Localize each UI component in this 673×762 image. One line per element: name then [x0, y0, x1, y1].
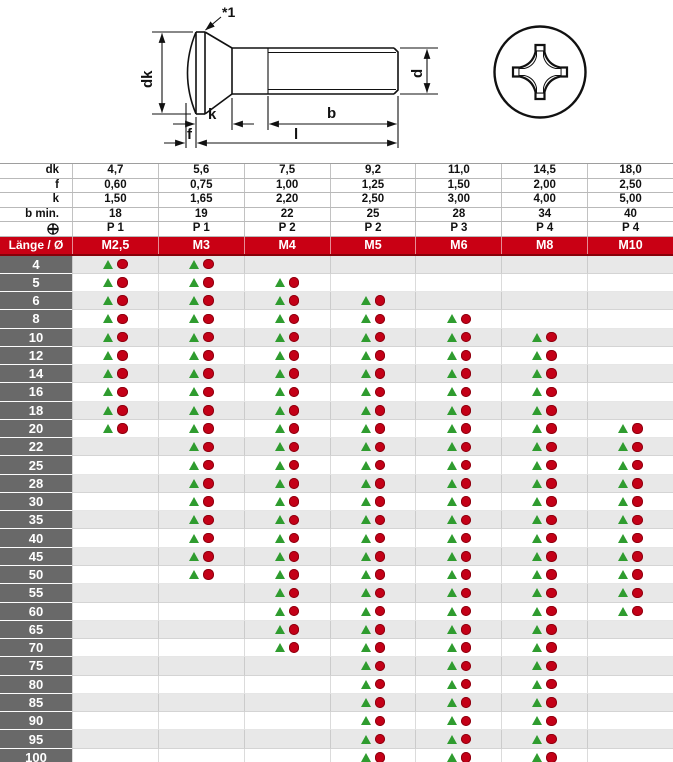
circle-marker [117, 423, 128, 434]
availability-cell [158, 603, 244, 621]
circle-marker [461, 387, 472, 398]
circle-marker [289, 368, 300, 379]
availability-cell [501, 256, 587, 274]
availability-cell [501, 456, 587, 474]
triangle-marker [447, 497, 457, 506]
length-row: 65 [0, 621, 673, 639]
availability-cell [72, 730, 158, 748]
availability-cell [330, 383, 416, 401]
triangle-marker [361, 735, 371, 744]
availability-cell [415, 566, 501, 584]
length-label: 22 [0, 438, 72, 456]
spec-label: b min. [0, 209, 72, 221]
triangle-marker [361, 534, 371, 543]
availability-cell [72, 329, 158, 347]
circle-marker [546, 442, 557, 453]
availability-cell [587, 603, 673, 621]
circle-marker [375, 642, 386, 653]
spec-value: 19 [158, 208, 244, 222]
availability-cell [330, 603, 416, 621]
triangle-marker [189, 314, 199, 323]
availability-cell [501, 730, 587, 748]
circle-marker [375, 533, 386, 544]
circle-marker [461, 368, 472, 379]
availability-cell [415, 749, 501, 762]
length-row: 35 [0, 511, 673, 529]
triangle-marker [189, 461, 199, 470]
availability-cell [72, 475, 158, 493]
availability-cell [587, 676, 673, 694]
spec-value: 25 [330, 208, 416, 222]
triangle-marker [532, 424, 542, 433]
availability-cell [158, 676, 244, 694]
circle-marker [546, 569, 557, 580]
circle-marker [203, 515, 214, 526]
circle-marker [461, 332, 472, 343]
circle-marker [546, 752, 557, 762]
length-row: 4 [0, 256, 673, 274]
availability-cell [158, 657, 244, 675]
circle-marker [546, 496, 557, 507]
triangle-marker [275, 570, 285, 579]
triangle-marker [361, 406, 371, 415]
circle-marker [546, 588, 557, 599]
circle-marker [632, 460, 643, 471]
availability-cell [72, 256, 158, 274]
circle-marker [632, 569, 643, 580]
length-row: 40 [0, 529, 673, 547]
circle-marker [289, 496, 300, 507]
triangle-marker [532, 735, 542, 744]
availability-cell [501, 566, 587, 584]
length-label: 85 [0, 694, 72, 712]
availability-cell [501, 676, 587, 694]
availability-cell [587, 712, 673, 730]
circle-marker [461, 697, 472, 708]
spec-value: P 4 [587, 222, 673, 236]
circle-marker [375, 478, 386, 489]
circle-marker [632, 606, 643, 617]
availability-cell [501, 584, 587, 602]
availability-cell [501, 365, 587, 383]
spec-value: 2,50 [330, 193, 416, 207]
circle-marker [461, 588, 472, 599]
triangle-marker [275, 442, 285, 451]
availability-cell [330, 639, 416, 657]
size-column-header: M5 [330, 237, 416, 254]
circle-marker [203, 551, 214, 562]
circle-marker [203, 569, 214, 580]
size-header-corner: Länge / Ø [0, 238, 72, 252]
triangle-marker [532, 570, 542, 579]
availability-cell [158, 274, 244, 292]
circle-marker [375, 332, 386, 343]
spec-value: 2,20 [244, 193, 330, 207]
availability-cell [587, 621, 673, 639]
availability-cell [244, 274, 330, 292]
availability-cell [244, 657, 330, 675]
triangle-marker [618, 570, 628, 579]
triangle-marker [275, 314, 285, 323]
spec-label: k [0, 194, 72, 206]
spec-value: 5,00 [587, 193, 673, 207]
triangle-marker [447, 735, 457, 744]
circle-marker [461, 515, 472, 526]
triangle-marker [361, 442, 371, 451]
circle-marker [289, 624, 300, 635]
triangle-marker [275, 387, 285, 396]
triangle-marker [189, 369, 199, 378]
triangle-marker [275, 461, 285, 470]
length-row: 25 [0, 456, 673, 474]
dim-label-dk: dk [139, 70, 156, 88]
length-label: 60 [0, 603, 72, 621]
availability-cell [72, 493, 158, 511]
dim-label-b: b [327, 105, 336, 122]
spec-value: P 3 [415, 222, 501, 236]
circle-marker [461, 314, 472, 325]
length-label: 8 [0, 310, 72, 328]
spec-value: 1,50 [72, 193, 158, 207]
availability-cell [330, 493, 416, 511]
circle-marker [632, 515, 643, 526]
triangle-marker [532, 333, 542, 342]
triangle-marker [532, 716, 542, 725]
availability-cell [72, 347, 158, 365]
availability-cell [330, 730, 416, 748]
triangle-marker [618, 424, 628, 433]
availability-cell [415, 274, 501, 292]
circle-marker [375, 496, 386, 507]
circle-marker [546, 642, 557, 653]
triangle-marker [447, 387, 457, 396]
length-label: 30 [0, 493, 72, 511]
circle-marker [461, 423, 472, 434]
availability-cell [330, 475, 416, 493]
availability-cell [158, 566, 244, 584]
triangle-marker [532, 406, 542, 415]
length-row: 70 [0, 639, 673, 657]
availability-cell [72, 548, 158, 566]
availability-cell [158, 256, 244, 274]
availability-cell [587, 749, 673, 762]
circle-marker [546, 368, 557, 379]
circle-marker [461, 661, 472, 672]
circle-marker [203, 442, 214, 453]
circle-marker [117, 368, 128, 379]
availability-cell [415, 493, 501, 511]
triangle-marker [532, 515, 542, 524]
spec-value: 3,00 [415, 193, 501, 207]
availability-cell [501, 310, 587, 328]
circle-marker [117, 387, 128, 398]
circle-marker [289, 551, 300, 562]
circle-marker [461, 551, 472, 562]
spec-value: 22 [244, 208, 330, 222]
triangle-marker [275, 552, 285, 561]
availability-cell [501, 529, 587, 547]
availability-cell [501, 621, 587, 639]
availability-table: 4568101214161820222528303540455055606570… [0, 256, 673, 762]
availability-cell [330, 749, 416, 762]
circle-marker [375, 314, 386, 325]
availability-cell [330, 511, 416, 529]
availability-cell [244, 456, 330, 474]
circle-marker [289, 569, 300, 580]
circle-marker [546, 515, 557, 526]
circle-marker [461, 350, 472, 361]
triangle-marker [103, 424, 113, 433]
triangle-marker [532, 625, 542, 634]
size-header-row: Länge / ØM2,5M3M4M5M6M8M10 [0, 237, 673, 256]
triangle-marker [275, 515, 285, 524]
availability-cell [72, 566, 158, 584]
circle-marker [289, 405, 300, 416]
length-label: 4 [0, 256, 72, 274]
triangle-marker [361, 607, 371, 616]
length-row: 18 [0, 402, 673, 420]
availability-cell [158, 347, 244, 365]
triangle-marker [532, 497, 542, 506]
triangle-marker [447, 442, 457, 451]
triangle-marker [447, 515, 457, 524]
availability-cell [158, 329, 244, 347]
circle-marker [117, 350, 128, 361]
availability-cell [244, 730, 330, 748]
spec-value: 11,0 [415, 164, 501, 178]
availability-cell [330, 712, 416, 730]
availability-cell [72, 292, 158, 310]
availability-cell [501, 639, 587, 657]
availability-cell [244, 566, 330, 584]
length-label: 16 [0, 383, 72, 401]
availability-cell [501, 329, 587, 347]
triangle-marker [447, 607, 457, 616]
dim-label-l: l [294, 126, 298, 143]
availability-cell [330, 529, 416, 547]
triangle-marker [361, 351, 371, 360]
circle-marker [461, 642, 472, 653]
availability-cell [330, 657, 416, 675]
triangle-marker [103, 369, 113, 378]
length-row: 50 [0, 566, 673, 584]
availability-cell [587, 402, 673, 420]
spec-value: 2,00 [501, 179, 587, 193]
availability-cell [158, 292, 244, 310]
circle-marker [203, 350, 214, 361]
circle-marker [375, 734, 386, 745]
triangle-marker [447, 534, 457, 543]
triangle-marker [447, 753, 457, 762]
availability-cell [415, 347, 501, 365]
circle-marker [289, 606, 300, 617]
triangle-marker [532, 753, 542, 762]
triangle-marker [618, 534, 628, 543]
spec-value: 4,7 [72, 164, 158, 178]
length-row: 30 [0, 493, 673, 511]
circle-marker [546, 387, 557, 398]
availability-cell [72, 274, 158, 292]
triangle-marker [275, 534, 285, 543]
triangle-marker [618, 479, 628, 488]
circle-marker [375, 350, 386, 361]
availability-cell [158, 749, 244, 762]
dim-label-k: k [208, 106, 217, 123]
circle-marker [203, 387, 214, 398]
triangle-marker [189, 497, 199, 506]
availability-cell [244, 548, 330, 566]
circle-marker [375, 606, 386, 617]
circle-marker [203, 368, 214, 379]
availability-cell [72, 657, 158, 675]
availability-cell [158, 730, 244, 748]
circle-marker [375, 387, 386, 398]
availability-cell [72, 529, 158, 547]
availability-cell [587, 383, 673, 401]
triangle-marker [532, 387, 542, 396]
triangle-marker [532, 461, 542, 470]
triangle-marker [275, 333, 285, 342]
availability-cell [415, 548, 501, 566]
availability-cell [330, 329, 416, 347]
spec-value: 1,25 [330, 179, 416, 193]
length-label: 40 [0, 529, 72, 547]
availability-cell [158, 438, 244, 456]
availability-cell [158, 548, 244, 566]
circle-marker [546, 624, 557, 635]
triangle-marker [618, 607, 628, 616]
triangle-marker [103, 333, 113, 342]
triangle-marker [361, 716, 371, 725]
circle-marker [375, 423, 386, 434]
circle-marker [461, 496, 472, 507]
length-label: 35 [0, 511, 72, 529]
length-label: 75 [0, 657, 72, 675]
circle-marker [461, 478, 472, 489]
triangle-marker [532, 698, 542, 707]
length-row: 10 [0, 329, 673, 347]
availability-cell [415, 292, 501, 310]
length-label: 5 [0, 274, 72, 292]
circle-marker [461, 460, 472, 471]
availability-cell [587, 584, 673, 602]
spec-value: P 1 [72, 222, 158, 236]
availability-cell [158, 639, 244, 657]
availability-cell [72, 402, 158, 420]
circle-marker [461, 679, 472, 690]
availability-cell [587, 511, 673, 529]
spec-value: P 1 [158, 222, 244, 236]
triangle-marker [189, 260, 199, 269]
spec-value: 7,5 [244, 164, 330, 178]
availability-cell [501, 511, 587, 529]
spec-row: b min.18192225283440 [0, 208, 673, 223]
circle-marker [375, 405, 386, 416]
availability-cell [330, 365, 416, 383]
screw-datasheet-page: dk k f b l d *1 dk4,75,67,59,211,014,518… [0, 0, 673, 762]
availability-cell [501, 292, 587, 310]
availability-cell [501, 694, 587, 712]
availability-cell [415, 511, 501, 529]
triangle-marker [275, 588, 285, 597]
availability-cell [415, 438, 501, 456]
circle-marker [632, 533, 643, 544]
circle-marker [289, 423, 300, 434]
circle-marker [375, 661, 386, 672]
triangle-marker [361, 479, 371, 488]
availability-cell [330, 621, 416, 639]
triangle-marker [103, 387, 113, 396]
length-row: 45 [0, 548, 673, 566]
triangle-marker [189, 534, 199, 543]
spec-value: 4,00 [501, 193, 587, 207]
availability-cell [158, 621, 244, 639]
availability-cell [158, 365, 244, 383]
length-label: 14 [0, 365, 72, 383]
circle-marker [117, 405, 128, 416]
availability-cell [244, 529, 330, 547]
size-column-header: M6 [415, 237, 501, 254]
triangle-marker [189, 552, 199, 561]
triangle-marker [361, 387, 371, 396]
triangle-marker [361, 296, 371, 305]
availability-cell [587, 256, 673, 274]
availability-cell [244, 676, 330, 694]
triangle-marker [532, 534, 542, 543]
spec-value: 5,6 [158, 164, 244, 178]
spec-value: 1,00 [244, 179, 330, 193]
availability-cell [330, 566, 416, 584]
circle-marker [461, 752, 472, 762]
availability-cell [244, 292, 330, 310]
length-label: 28 [0, 475, 72, 493]
availability-cell [587, 730, 673, 748]
length-label: 10 [0, 329, 72, 347]
phillips-icon [47, 223, 59, 235]
spec-label: dk [0, 165, 72, 177]
triangle-marker [447, 643, 457, 652]
circle-marker [546, 332, 557, 343]
triangle-marker [447, 406, 457, 415]
spec-value: 14,5 [501, 164, 587, 178]
circle-marker [203, 478, 214, 489]
screw-side-view [188, 32, 399, 114]
triangle-marker [189, 278, 199, 287]
availability-cell [587, 292, 673, 310]
availability-cell [244, 475, 330, 493]
availability-cell [415, 456, 501, 474]
spec-row: k1,501,652,202,503,004,005,00 [0, 193, 673, 208]
availability-cell [415, 402, 501, 420]
circle-marker [375, 588, 386, 599]
availability-cell [72, 456, 158, 474]
length-row: 100 [0, 749, 673, 762]
triangle-marker [532, 479, 542, 488]
availability-cell [330, 694, 416, 712]
spec-value: P 2 [330, 222, 416, 236]
triangle-marker [275, 625, 285, 634]
circle-marker [117, 295, 128, 306]
availability-cell [158, 712, 244, 730]
circle-marker [632, 588, 643, 599]
triangle-marker [103, 296, 113, 305]
circle-marker [203, 295, 214, 306]
triangle-marker [103, 351, 113, 360]
availability-cell [587, 456, 673, 474]
circle-marker [203, 423, 214, 434]
availability-cell [244, 603, 330, 621]
availability-cell [501, 383, 587, 401]
